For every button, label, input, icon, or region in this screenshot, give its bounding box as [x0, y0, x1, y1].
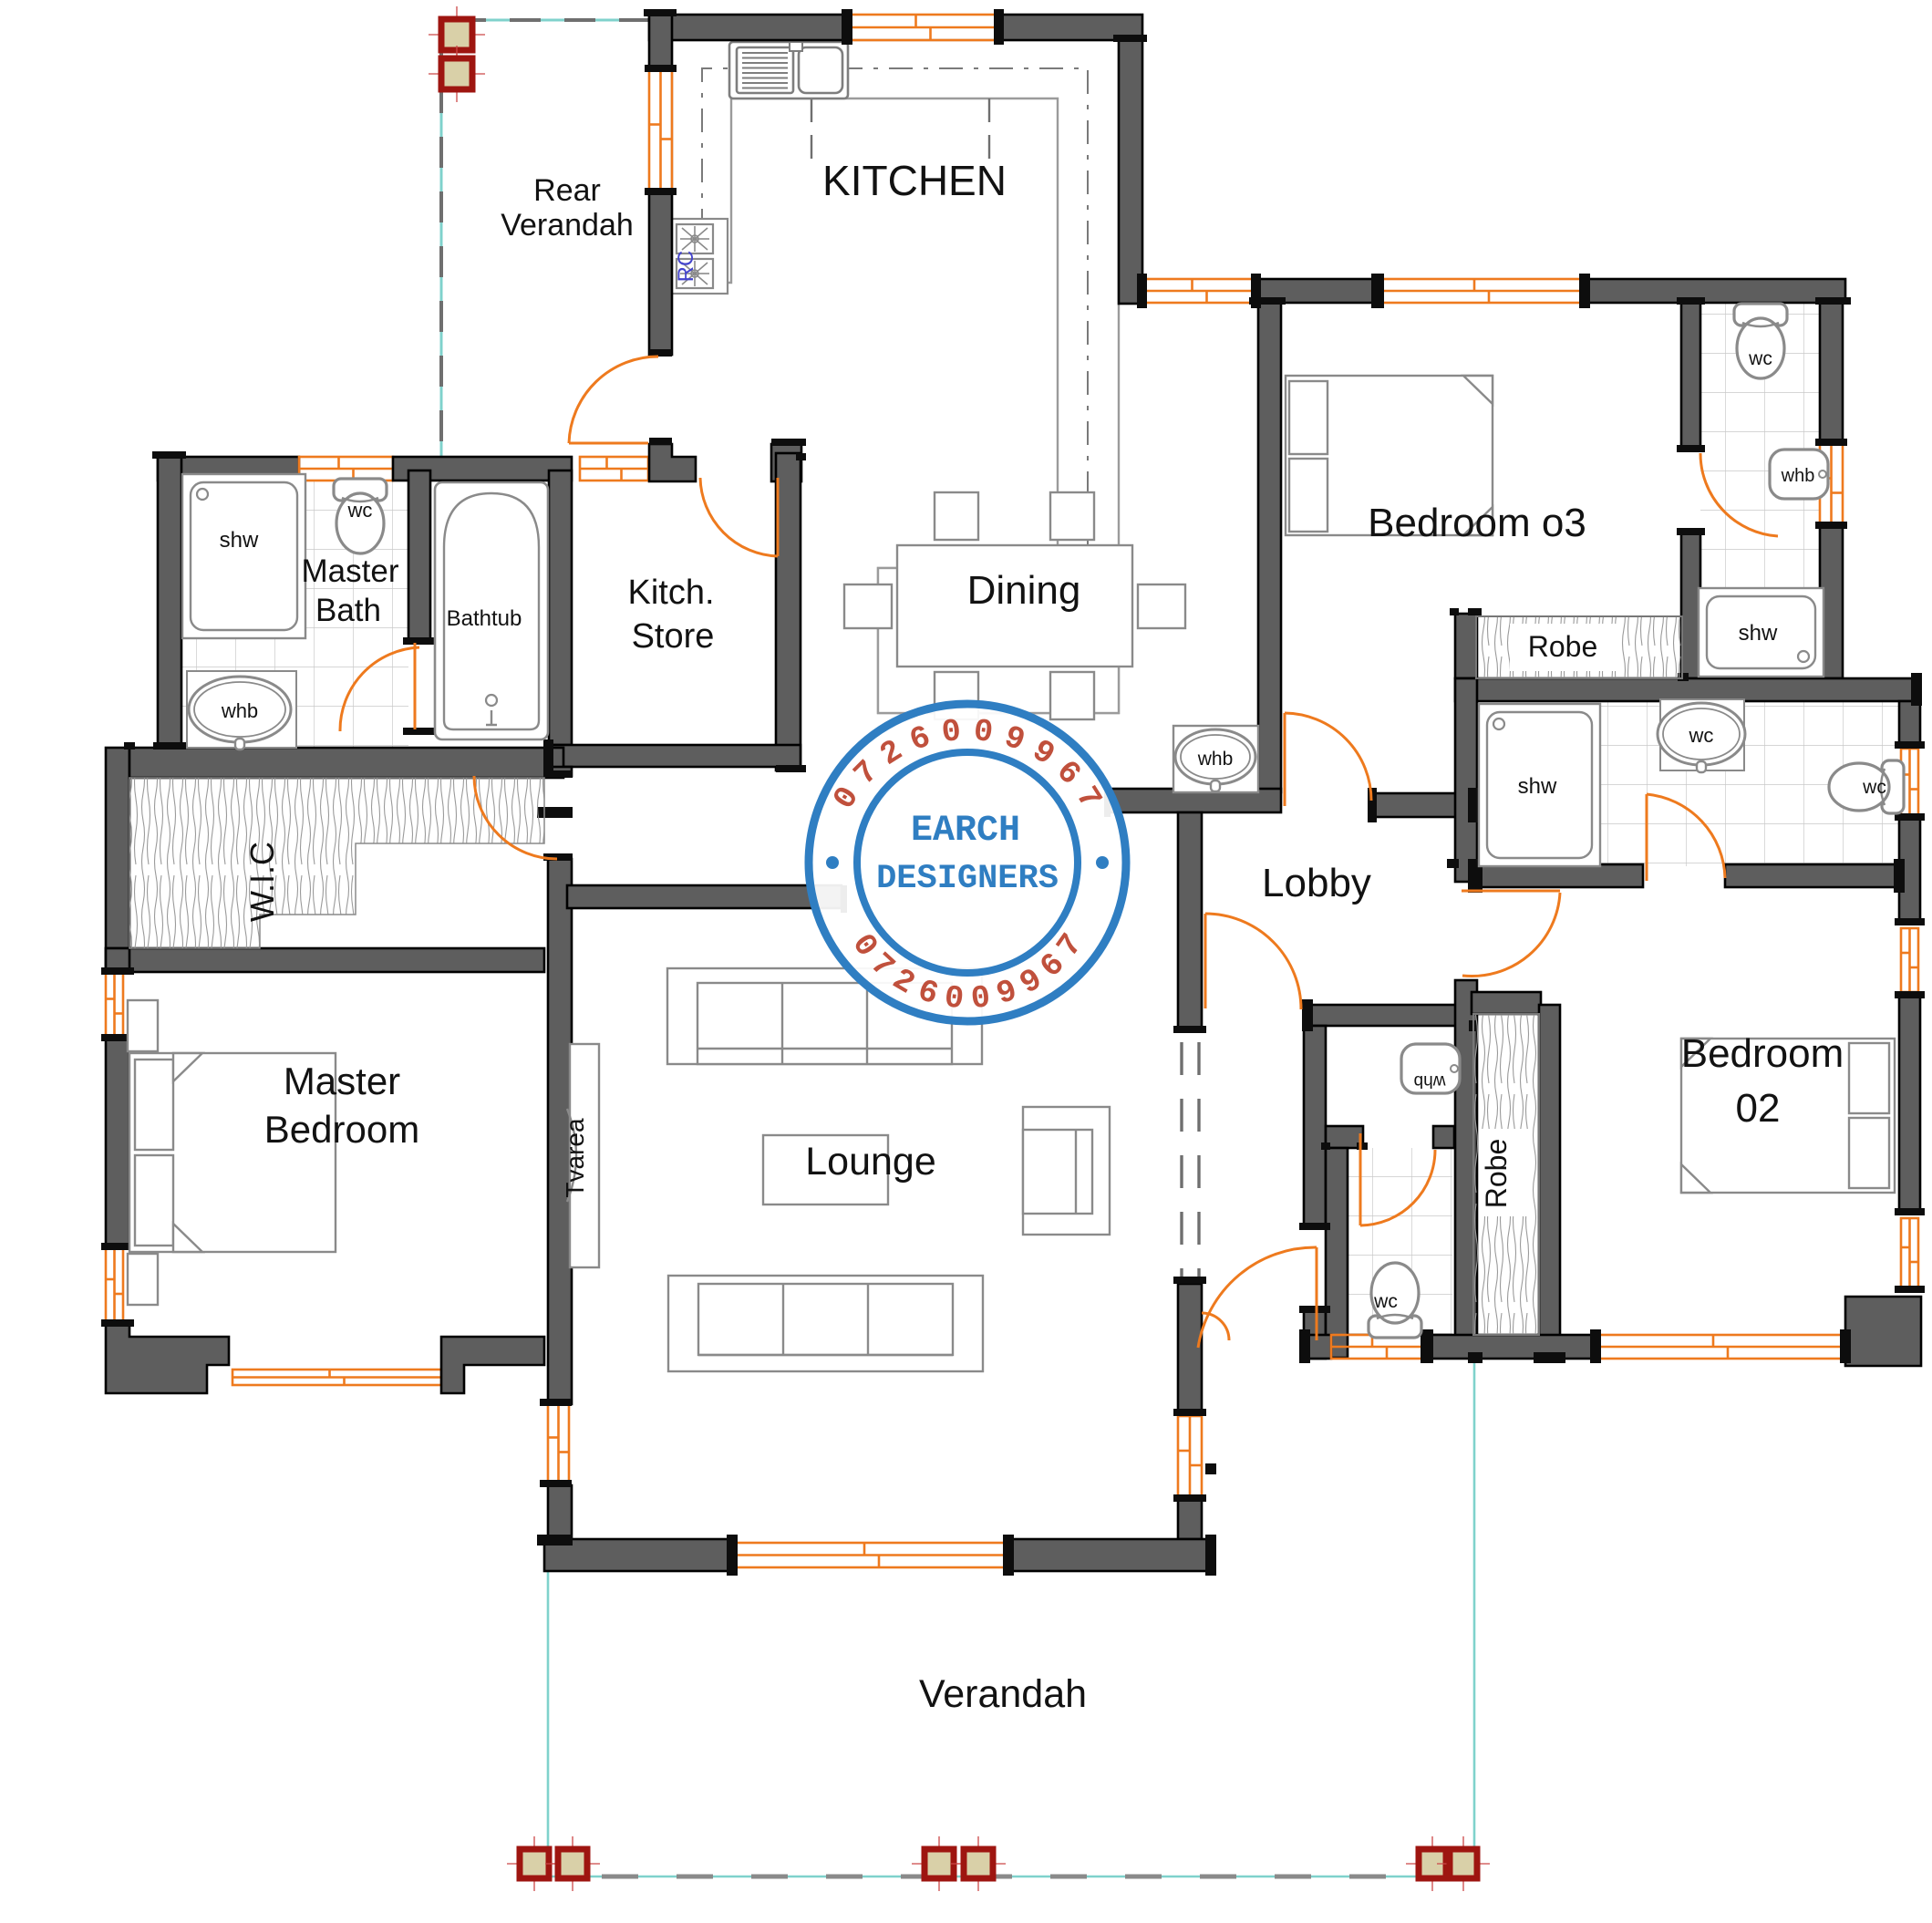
- svg-text:whb: whb: [1781, 466, 1815, 486]
- svg-text:Verandah: Verandah: [919, 1672, 1087, 1716]
- svg-text:wc: wc: [1748, 348, 1772, 369]
- svg-text:Bedroom: Bedroom: [1681, 1031, 1844, 1076]
- svg-text:Rear: Rear: [533, 173, 601, 208]
- svg-text:Bedroom: Bedroom: [264, 1108, 419, 1151]
- svg-text:shw: shw: [1518, 774, 1557, 799]
- svg-text:wc: wc: [347, 499, 373, 522]
- svg-text:Store: Store: [632, 617, 715, 656]
- svg-text:Lounge: Lounge: [805, 1140, 936, 1184]
- svg-text:Master: Master: [302, 553, 399, 589]
- svg-text:Master: Master: [284, 1060, 400, 1102]
- svg-text:Dining: Dining: [967, 568, 1081, 613]
- svg-text:Kitch.: Kitch.: [627, 574, 714, 612]
- svg-text:EARCH: EARCH: [911, 811, 1020, 852]
- svg-text:Verandah: Verandah: [501, 208, 634, 243]
- svg-text:Lobby: Lobby: [1262, 861, 1371, 905]
- svg-text:Bathtub: Bathtub: [447, 606, 522, 631]
- svg-text:whb: whb: [1197, 749, 1234, 770]
- svg-text:DESIGNERS: DESIGNERS: [876, 860, 1059, 898]
- svg-text:wc: wc: [1689, 724, 1714, 747]
- svg-text:wc: wc: [1373, 1291, 1398, 1312]
- svg-text:whb: whb: [1414, 1071, 1447, 1091]
- svg-text:02: 02: [1736, 1086, 1781, 1131]
- svg-text:Robe: Robe: [1480, 1139, 1513, 1209]
- svg-text:shw: shw: [220, 528, 259, 553]
- svg-text:RC: RC: [674, 251, 698, 283]
- svg-text:0: 0: [940, 713, 963, 751]
- svg-text:wc: wc: [1862, 777, 1886, 798]
- svg-text:shw: shw: [1739, 621, 1778, 646]
- svg-text:Tvarea: Tvarea: [561, 1118, 589, 1198]
- svg-text:0: 0: [972, 713, 995, 751]
- svg-text:Bath: Bath: [315, 593, 381, 628]
- svg-text:KITCHEN: KITCHEN: [822, 157, 1007, 204]
- svg-text:0: 0: [943, 979, 966, 1018]
- svg-text:W.I.C: W.I.C: [243, 842, 281, 922]
- svg-text:Robe: Robe: [1528, 630, 1598, 663]
- svg-text:Bedroom o3: Bedroom o3: [1368, 501, 1586, 545]
- svg-text:whb: whb: [221, 699, 258, 722]
- svg-text:0: 0: [969, 979, 992, 1018]
